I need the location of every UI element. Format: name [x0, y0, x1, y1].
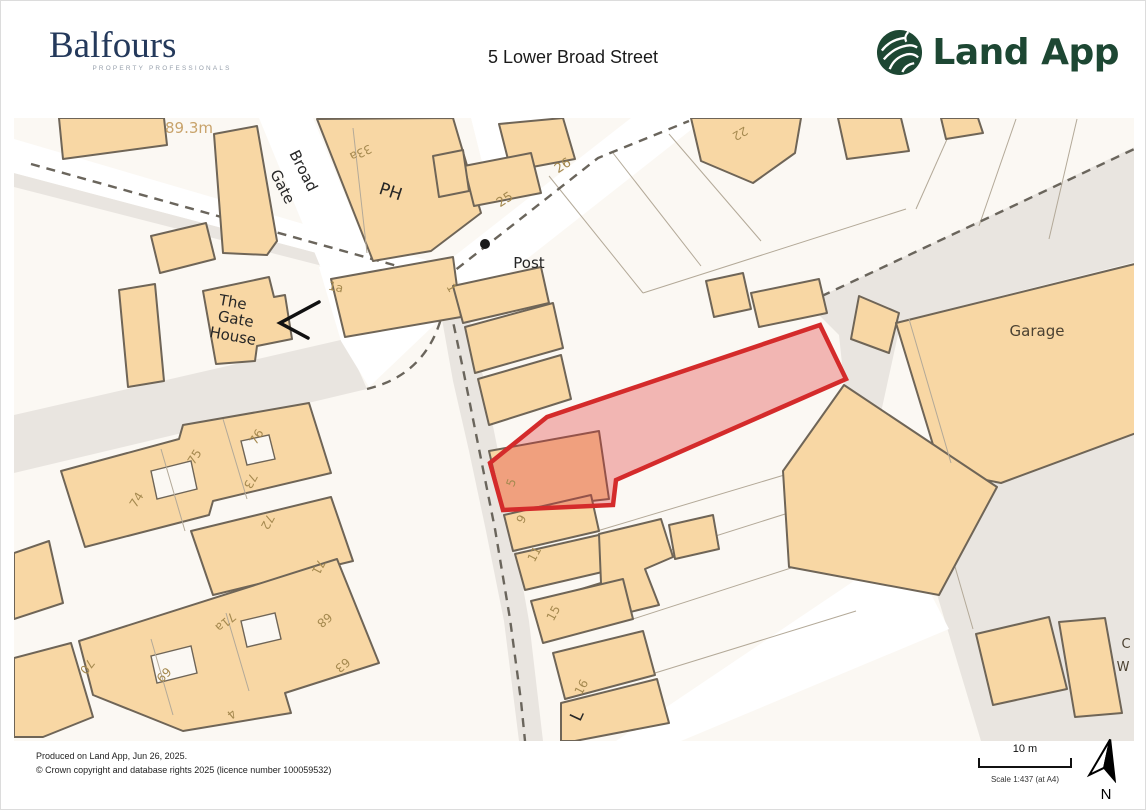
north-arrow-icon — [1083, 737, 1129, 783]
north-label: N — [1083, 786, 1129, 803]
building — [433, 150, 469, 197]
produced-line: Produced on Land App, Jun 26, 2025. — [36, 749, 331, 763]
scale-bar-graphic — [973, 757, 1077, 769]
post-marker-dot — [480, 239, 490, 249]
north-arrow: N — [1083, 737, 1129, 803]
scale-bar-label: 10 m — [973, 743, 1077, 755]
landapp-logo: Land App — [876, 29, 1119, 76]
map-canvas[interactable]: 89.3mBroadGatePH33a252622Post11aTheGateH… — [14, 118, 1134, 741]
map-label-w: W — [1117, 660, 1130, 675]
map-label-post: Post — [513, 254, 545, 272]
scale-bar: 10 m Scale 1:437 (at A4) — [973, 743, 1077, 784]
landapp-wordmark: Land App — [932, 32, 1119, 73]
map: 89.3mBroadGatePH33a252622Post11aTheGateH… — [14, 118, 1134, 741]
scale-ratio: Scale 1:437 (at A4) — [973, 775, 1077, 784]
copyright-line: © Crown copyright and database rights 20… — [36, 763, 331, 777]
landapp-contour-icon — [876, 29, 923, 76]
page: Balfours PROPERTY PROFESSIONALS 5 Lower … — [0, 0, 1146, 810]
map-label-garage: Garage — [1010, 322, 1065, 340]
map-label-89-3m: 89.3m — [165, 119, 213, 137]
building — [838, 118, 909, 159]
map-label-c: C — [1121, 637, 1130, 652]
attribution: Produced on Land App, Jun 26, 2025. © Cr… — [36, 749, 331, 777]
building — [119, 284, 164, 387]
building — [706, 273, 751, 317]
